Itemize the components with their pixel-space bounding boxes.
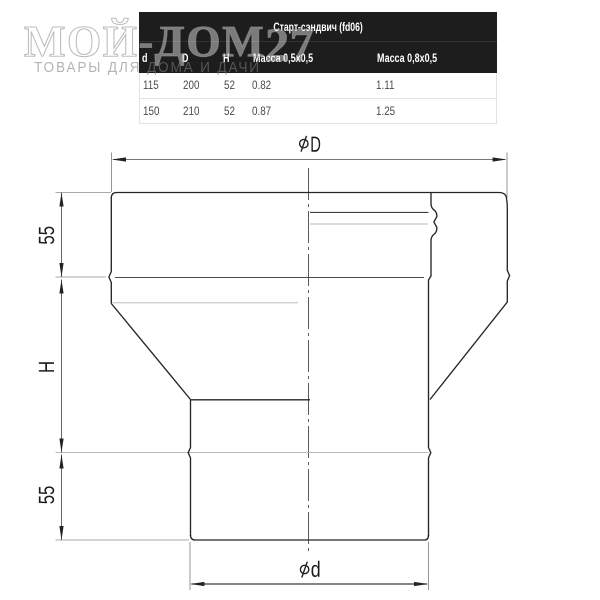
- svg-text:d: d: [311, 557, 321, 582]
- svg-text:D: D: [310, 132, 321, 157]
- svg-text:55: 55: [34, 226, 59, 245]
- svg-text:H: H: [34, 361, 59, 373]
- svg-text:55: 55: [34, 486, 59, 505]
